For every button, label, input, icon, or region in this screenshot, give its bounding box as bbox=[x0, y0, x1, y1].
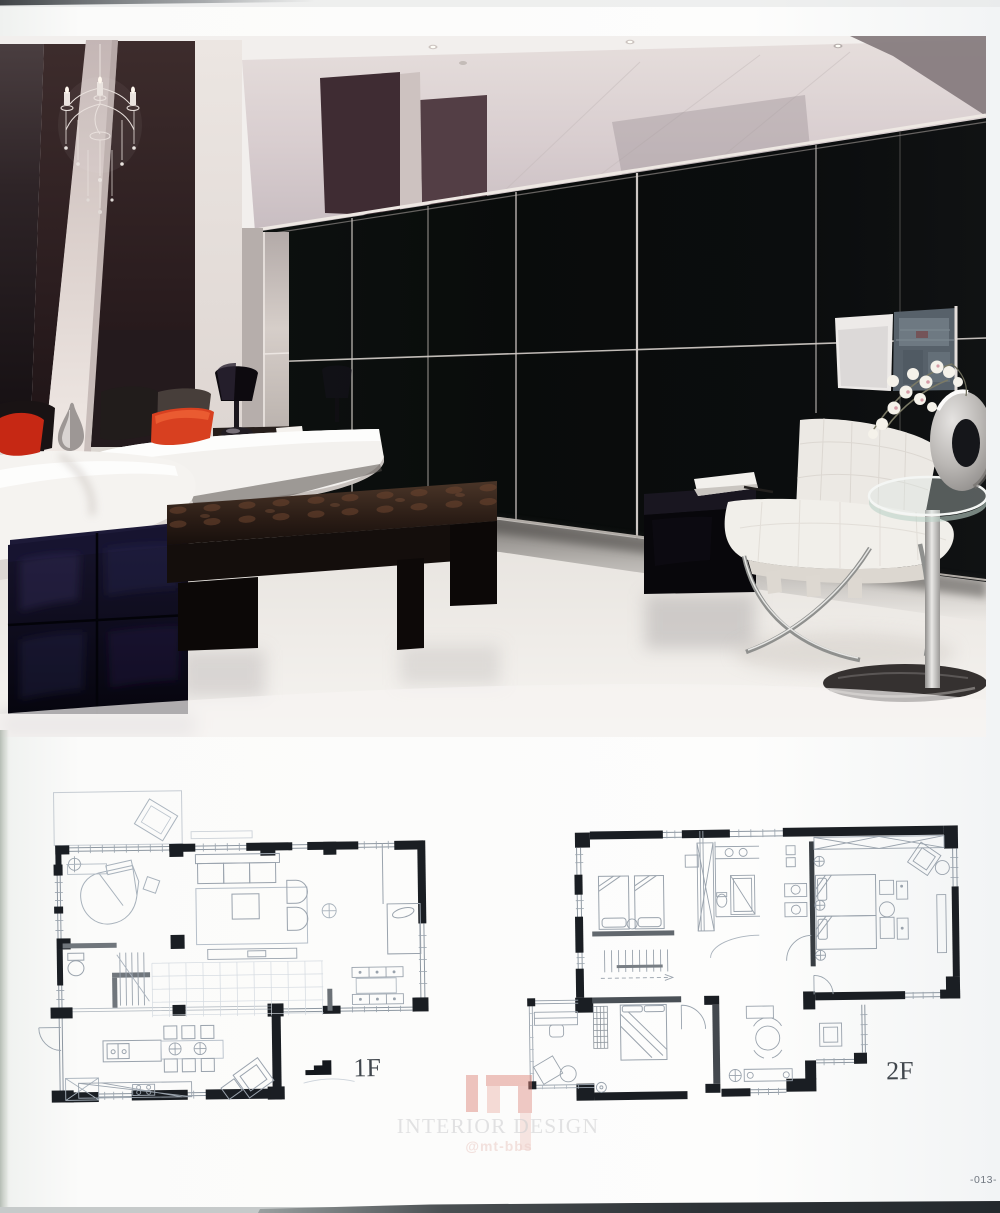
svg-text:2F: 2F bbox=[886, 1056, 914, 1085]
svg-text:@mt-bbs: @mt-bbs bbox=[465, 1138, 532, 1154]
svg-text:1F: 1F bbox=[353, 1053, 381, 1082]
svg-text:-013-: -013- bbox=[970, 1174, 997, 1186]
svg-text:INTERIOR DESIGN: INTERIOR DESIGN bbox=[397, 1114, 600, 1138]
